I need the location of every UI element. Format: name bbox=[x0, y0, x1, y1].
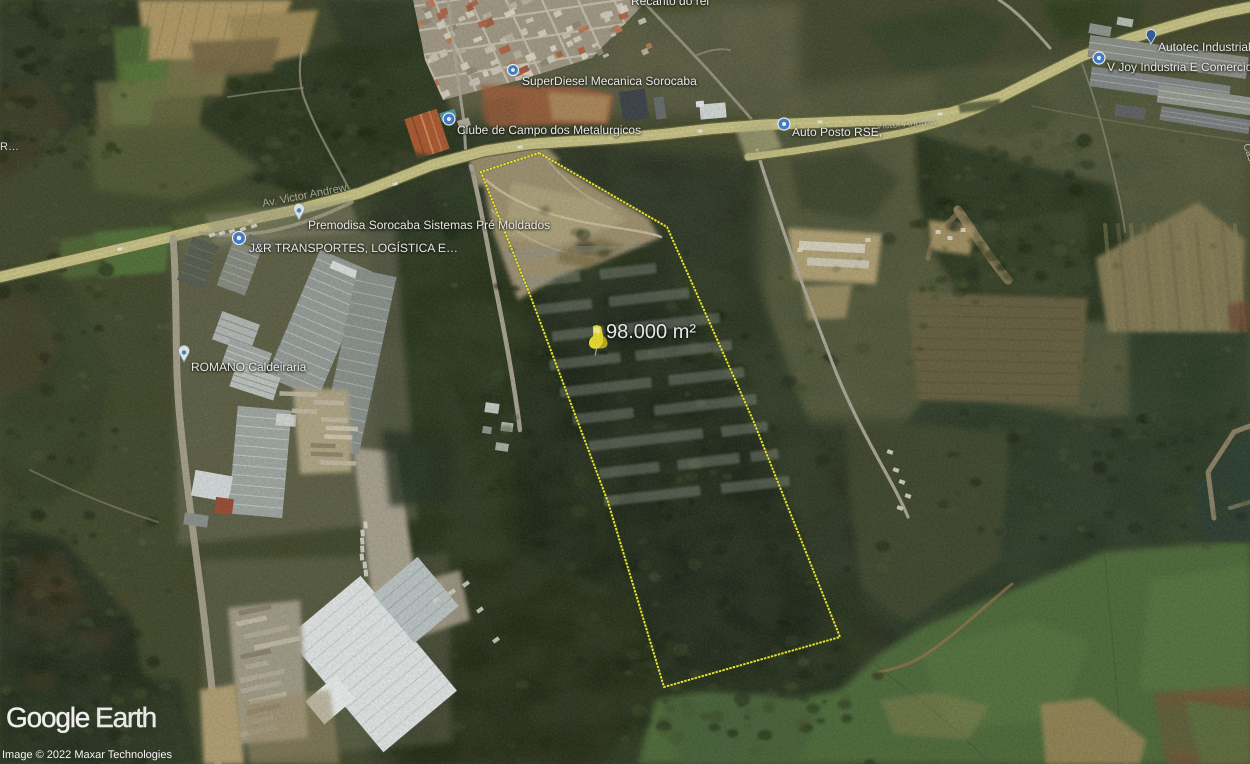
svg-text:Image © 2022 Maxar Technologie: Image © 2022 Maxar Technologies bbox=[2, 749, 172, 761]
svg-text:GoogleEarth: GoogleEarth bbox=[6, 702, 156, 733]
